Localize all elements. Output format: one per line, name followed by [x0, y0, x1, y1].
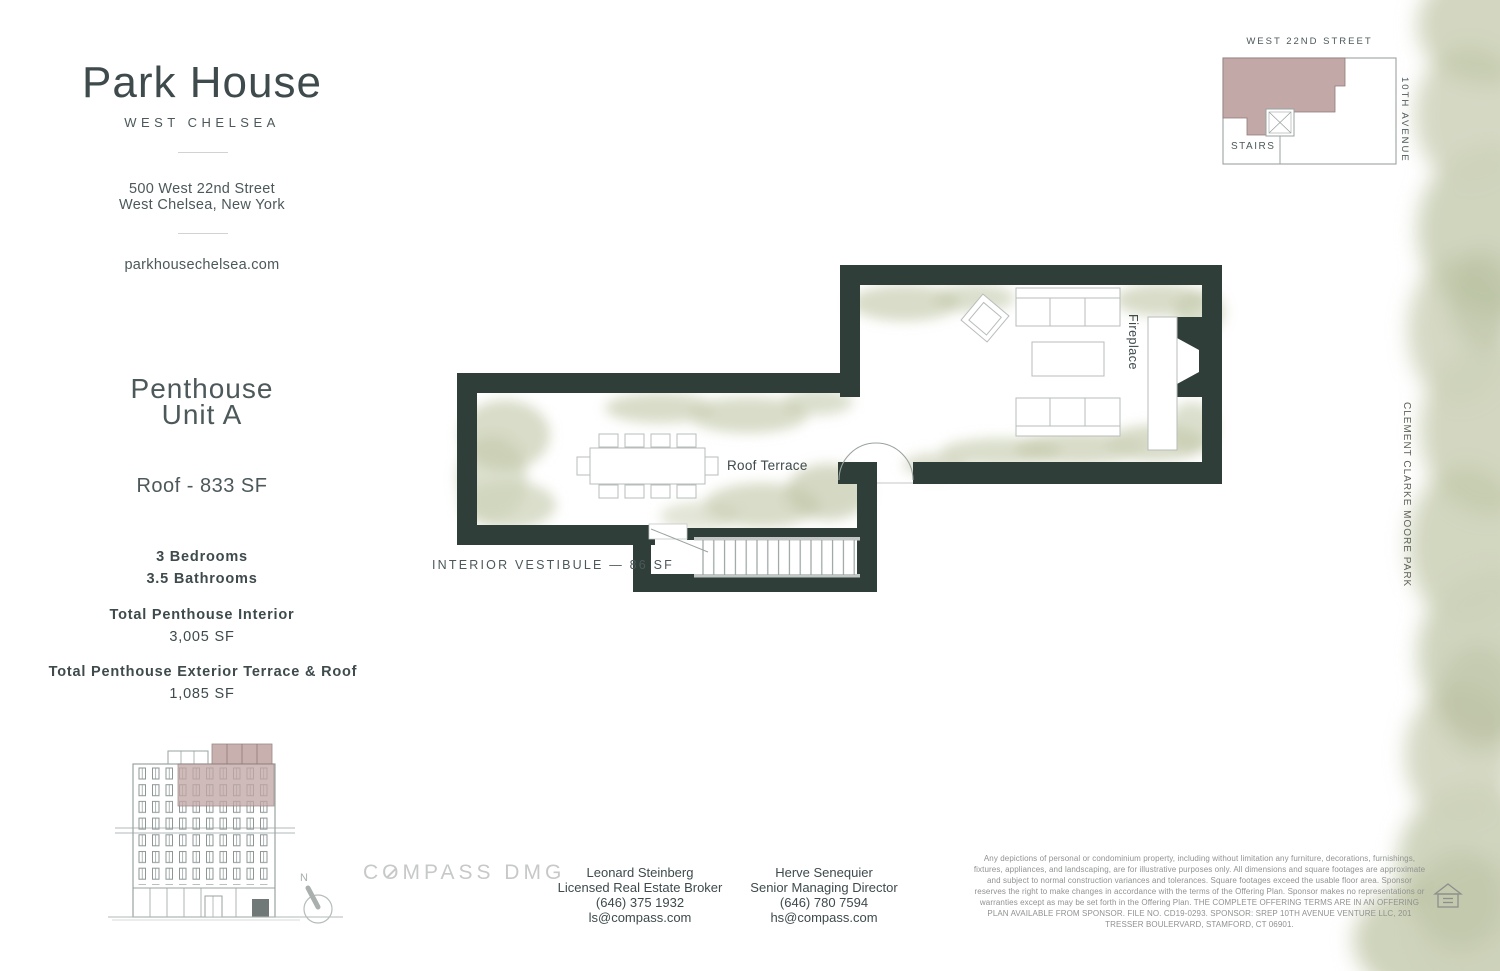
agent-card: Leonard Steinberg Licensed Real Estate B… — [550, 865, 730, 925]
compass-rose — [304, 888, 332, 923]
key-plan-stairs-label: STAIRS — [1231, 141, 1275, 152]
agent-phone: (646) 780 7594 — [734, 895, 914, 910]
exterior-sf-value: 1,085 SF — [58, 683, 346, 705]
fireplace-hearth — [1148, 317, 1177, 450]
fireplace-label: Fireplace — [1126, 314, 1140, 370]
key-plan-elevator — [1266, 109, 1294, 136]
exterior-sf-label: Total Penthouse Exterior Terrace & Roof — [28, 661, 378, 683]
page-subtitle: WEST CHELSEA — [58, 115, 346, 130]
divider — [178, 152, 228, 153]
park-name-label: CLEMENT CLARKE MOORE PARK — [1401, 402, 1412, 587]
key-plan-street-right-label: 10TH AVENUE — [1399, 77, 1410, 163]
agent-card: Herve Senequier Senior Managing Director… — [734, 865, 914, 925]
agent-email: ls@compass.com — [550, 910, 730, 925]
dining-table-set — [577, 434, 718, 498]
interior-sf-label: Total Penthouse Interior — [58, 604, 346, 626]
divider — [178, 233, 228, 234]
agent-title: Senior Managing Director — [734, 880, 914, 895]
vestibule-label: INTERIOR VESTIBULE — 86 SF — [432, 558, 674, 572]
flyer-page: Park House WEST CHELSEA 500 West 22nd St… — [0, 0, 1500, 971]
page-title: Park House — [58, 58, 346, 108]
agent-name: Leonard Steinberg — [550, 865, 730, 880]
website-text: parkhousechelsea.com — [58, 255, 346, 276]
building-elevation-illustration — [108, 744, 343, 920]
roof-terrace-label: Roof Terrace — [727, 458, 808, 473]
brokerage-logo: COMPASS DMG — [363, 861, 565, 885]
interior-sf-value: 3,005 SF — [58, 626, 346, 648]
building-storefront — [133, 888, 275, 917]
bedrooms-text: 3 Bedrooms — [58, 546, 346, 568]
agent-phone: (646) 375 1932 — [550, 895, 730, 910]
agent-email: hs@compass.com — [734, 910, 914, 925]
agent-title: Licensed Real Estate Broker — [550, 880, 730, 895]
legal-disclaimer: Any depictions of personal or condominiu… — [972, 853, 1427, 930]
key-plan-street-top-label: WEST 22ND STREET — [1223, 36, 1396, 47]
park-greenery-band — [1353, 0, 1500, 971]
address-line2: West Chelsea, New York — [58, 195, 346, 216]
unit-name-line2: Unit A — [58, 398, 346, 431]
living-room-furniture — [961, 288, 1120, 436]
bathrooms-text: 3.5 Bathrooms — [58, 568, 346, 590]
floor-area-label: Roof - 833 SF — [58, 475, 346, 498]
compass-north-label: N — [300, 872, 309, 884]
agent-name: Herve Senequier — [734, 865, 914, 880]
